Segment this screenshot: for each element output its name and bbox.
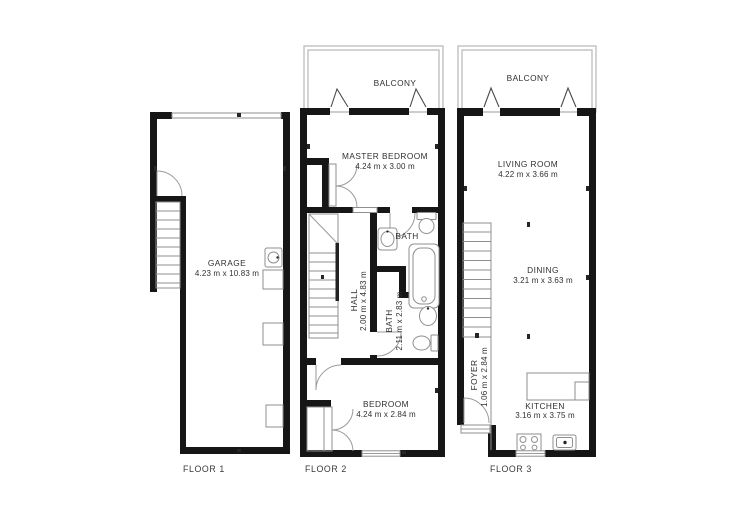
foyer-label: FOYER	[469, 360, 479, 391]
floor2-plan: BALCONY	[300, 46, 445, 474]
floor2-balcony-label: BALCONY	[374, 78, 417, 88]
ensuite-bath-label: BATH	[395, 231, 418, 241]
ensuite-sink	[378, 228, 397, 250]
floor1-stairs	[156, 202, 180, 288]
garage-cabinet-1	[263, 270, 283, 289]
kitchen-counter	[527, 373, 589, 400]
garage-cabinet-2	[263, 323, 283, 345]
floor2-label: FLOOR 2	[305, 464, 347, 474]
bath2-label: BATH	[384, 309, 394, 332]
bedroom-door	[316, 365, 341, 390]
bath2-toilet	[413, 335, 438, 351]
bathtub	[409, 244, 439, 308]
floor3-plan: BALCONY	[457, 46, 596, 474]
stove	[517, 434, 541, 452]
floor1-label: FLOOR 1	[183, 464, 225, 474]
water-heater	[265, 248, 282, 267]
garage-door	[172, 113, 281, 118]
floor2-stairs	[309, 214, 339, 338]
living-room-dims: 4.22 m x 3.66 m	[498, 170, 558, 179]
hall-label: HALL	[349, 289, 359, 312]
floor3-balcony-label: BALCONY	[507, 73, 550, 83]
bath2-dims: 2.11 m x 2.83 m	[395, 291, 404, 350]
bedroom-label: BEDROOM	[363, 399, 409, 409]
floor2-balcony-doors	[331, 89, 426, 107]
master-door-threshold	[353, 208, 377, 213]
entry-threshold	[461, 425, 490, 433]
foyer-dims: 1.06 m x 2.84 m	[480, 347, 489, 407]
living-room-label: LIVING ROOM	[498, 159, 558, 169]
floor1-stair-door	[157, 171, 182, 196]
ensuite-toilet	[417, 213, 436, 234]
kitchen-label: KITCHEN	[525, 401, 565, 411]
dining-label: DINING	[527, 265, 559, 275]
hall-dims: 2.00 m x 4.83 m	[359, 271, 368, 331]
kitchen-window	[516, 451, 545, 456]
master-bedroom-closet	[329, 164, 357, 207]
kitchen-sink	[553, 435, 576, 450]
master-bedroom-dims: 4.24 m x 3.00 m	[355, 162, 415, 171]
garage-dims: 4.23 m x 10.83 m	[195, 269, 259, 278]
floor3-balcony-doors	[484, 88, 576, 107]
floorplan-drawing: GARAGE 4.23 m x 10.83 m FLOOR 1 BALCONY	[0, 0, 749, 530]
bedroom-closet	[307, 407, 353, 451]
garage-label: GARAGE	[208, 258, 246, 268]
garage-cabinet-3	[266, 405, 283, 427]
floor2-window	[362, 451, 400, 456]
dining-dims: 3.21 m x 3.63 m	[513, 276, 573, 285]
kitchen-dims: 3.16 m x 3.75 m	[515, 411, 575, 420]
floor3-wall-ticks	[464, 186, 589, 339]
master-bedroom-label: MASTER BEDROOM	[342, 151, 428, 161]
bedroom-dims: 4.24 m x 2.84 m	[356, 410, 416, 419]
floorplan-canvas: GARAGE 4.23 m x 10.83 m FLOOR 1 BALCONY	[0, 0, 749, 530]
floor1-plan: GARAGE 4.23 m x 10.83 m FLOOR 1	[150, 112, 290, 474]
floor3-label: FLOOR 3	[490, 464, 532, 474]
floor3-stairs	[463, 223, 491, 450]
bath2-sink	[420, 307, 437, 326]
